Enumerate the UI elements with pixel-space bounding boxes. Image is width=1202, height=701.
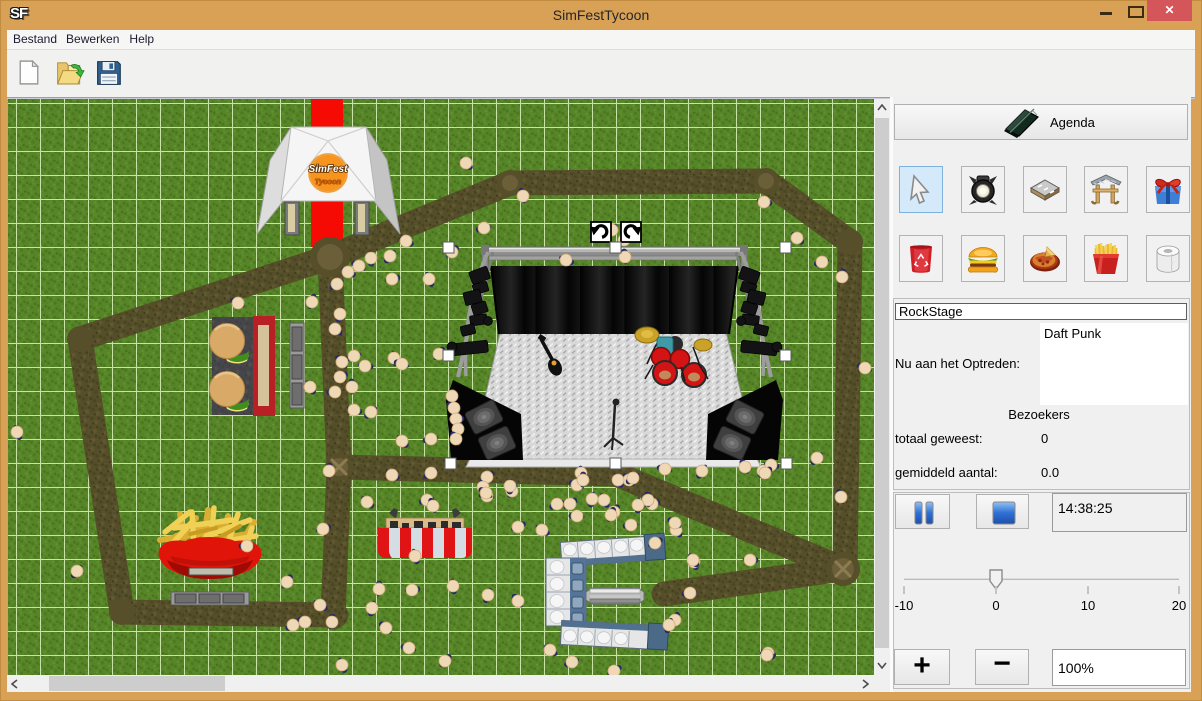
svg-text:Tycoon: Tycoon (315, 177, 342, 186)
svg-text:SimFest: SimFest (309, 164, 349, 175)
